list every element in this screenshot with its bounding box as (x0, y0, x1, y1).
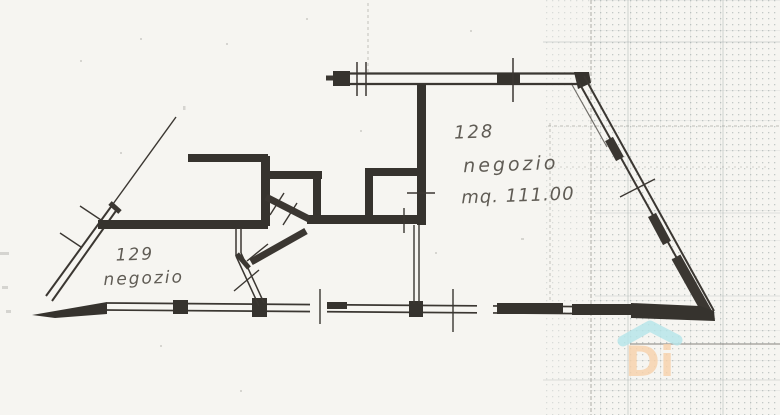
unit-129-number: 129 (115, 244, 154, 265)
pillar (409, 301, 423, 317)
floor-plan-drawing: 128 negozio mq. 111.00 129 negozio Di (0, 0, 780, 415)
unit-129-use: negozio (103, 267, 184, 290)
unit-128-number: 128 (454, 121, 495, 143)
floor-plan-scan: 128 negozio mq. 111.00 129 negozio Di (0, 0, 780, 415)
main-partition-wall (417, 84, 426, 225)
watermark-letters: Di (625, 337, 674, 386)
unit-128-use: negozio (463, 152, 559, 177)
unit-128-area: mq. 111.00 (461, 183, 575, 208)
pillar (173, 300, 188, 314)
pillar (252, 298, 267, 317)
